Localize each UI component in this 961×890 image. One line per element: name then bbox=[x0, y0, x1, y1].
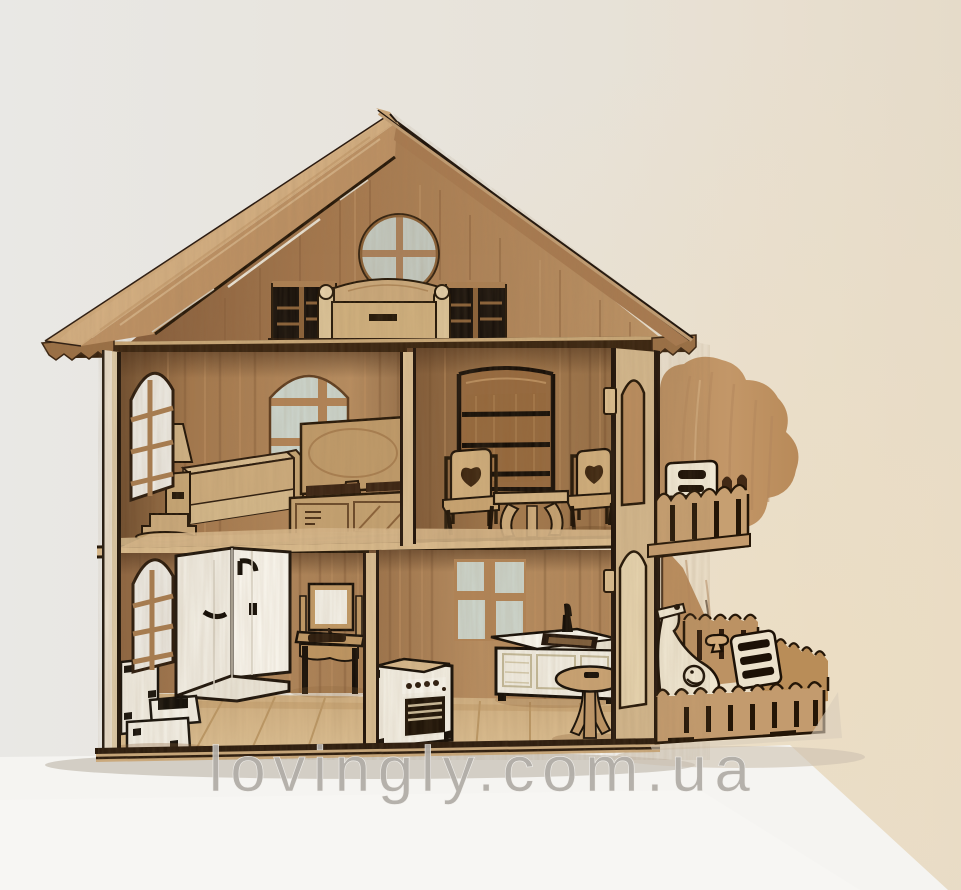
svg-text:lovingly.com.ua: lovingly.com.ua bbox=[209, 733, 758, 805]
